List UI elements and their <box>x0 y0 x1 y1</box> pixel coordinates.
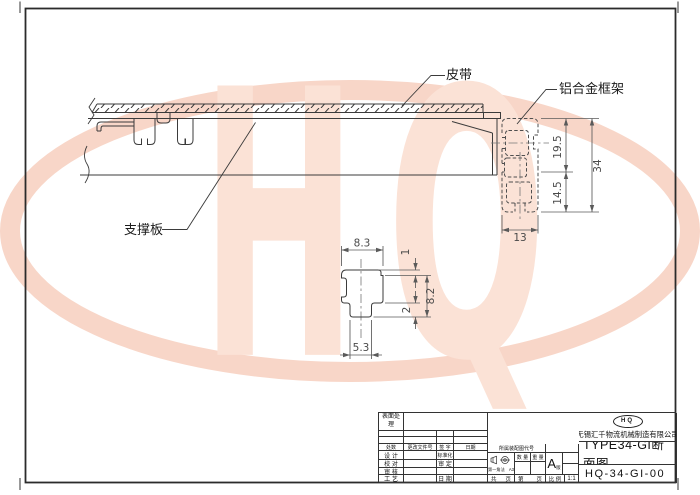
drawing-number: HQ-34-GI-00 <box>579 465 677 483</box>
blank-cell <box>454 460 488 468</box>
dim-guide-top-width: 8.3 <box>354 238 371 250</box>
blank-cell <box>404 451 437 460</box>
blank-cell <box>563 453 579 464</box>
plate-hook <box>186 119 194 145</box>
dim-frame-width: 13 <box>513 232 526 244</box>
dim-frame-upper: 19.5 <box>552 135 564 158</box>
company-cell: HQ 无锡汇千物流机械制造有限公司 <box>579 413 677 442</box>
scale-label: 比 例 <box>546 475 565 483</box>
changes-count-label: 处数 <box>379 444 404 451</box>
change-doc-label: 更改文件号 <box>404 444 437 451</box>
reviewer-label: 审 核 <box>379 468 404 475</box>
revision-word: 版 <box>556 465 561 471</box>
drawing-title: TYPE34-GI断面图 <box>579 442 677 465</box>
belt-section <box>92 104 501 123</box>
sheet-number-cell: 第 页 <box>515 475 546 483</box>
standardization-label: 标准化 <box>437 451 454 460</box>
label-belt: 皮带 <box>446 68 472 83</box>
blank-cell <box>379 437 404 444</box>
checker-label: 校 对 <box>379 460 404 468</box>
first-angle-projection-icon <box>489 454 513 466</box>
plate-hook <box>134 119 142 145</box>
date2-label: 日 期 <box>437 475 454 483</box>
designer-label: 设 计 <box>379 451 404 460</box>
signature-label: 签 字 <box>437 444 454 451</box>
blank-cell <box>515 462 531 475</box>
blank-cell <box>454 437 488 444</box>
blank-cell <box>563 464 579 475</box>
projection-cell: 第一角法 A3 <box>488 453 515 475</box>
date-label: 日期 <box>454 444 488 451</box>
plate-hook <box>178 119 186 145</box>
blank-cell <box>404 437 437 444</box>
scale-value: 1:1 <box>565 475 579 483</box>
projection-method-label: 第一角法 <box>488 467 505 473</box>
label-frame: 铝合金框架 <box>559 81 624 97</box>
blank-cell <box>454 475 488 483</box>
page-word: 页 <box>505 475 511 483</box>
total-word: 共 <box>491 475 497 483</box>
title-block: 表面处理 处数 更改文件号 签 字 日期 设 计 标准化 校 对 审 定 审 核… <box>378 412 676 482</box>
plate-hook <box>148 119 156 145</box>
guide-profile-detail <box>342 270 384 317</box>
blank-cell <box>454 468 488 475</box>
sheet-size-label: A3 <box>509 467 514 473</box>
callout-leaders <box>162 76 557 230</box>
blank-label <box>437 468 454 475</box>
drawing-sheet: { "watermark": { "text": "HQ" }, "callou… <box>0 0 700 495</box>
quantity-label: 数 量 <box>515 453 531 462</box>
dim-guide-bottom-width: 5.3 <box>353 342 370 354</box>
page-word2: 页 <box>536 475 542 483</box>
label-plate: 支撑板 <box>124 223 163 238</box>
blank-cell <box>404 468 437 475</box>
frame-dimensions <box>502 119 599 234</box>
dim-guide-lip: 1 <box>400 249 412 256</box>
blank-cell <box>404 475 437 483</box>
revision-letter: A <box>547 456 556 471</box>
blank-cell <box>454 451 488 460</box>
blank-cell <box>437 437 454 444</box>
belt-guide-groove <box>157 113 170 124</box>
blank-cell <box>531 462 546 475</box>
dim-frame-total: 34 <box>592 159 604 173</box>
revision-cell: A 版 <box>546 453 563 475</box>
dim-frame-lower: 14.5 <box>552 181 564 204</box>
blank-cell <box>404 460 437 468</box>
company-name: 无锡汇千物流机械制造有限公司 <box>579 430 677 440</box>
ordinal-word: 第 <box>518 475 524 483</box>
surface-treatment-label: 表面处理 <box>379 413 404 431</box>
process-label: 工 艺 <box>379 475 404 483</box>
blank-cell <box>404 413 488 431</box>
total-sheets-cell: 共 页 <box>488 475 515 483</box>
dim-guide-flange: 2 <box>401 307 413 314</box>
assembly-code-label: 所属装配图代号 <box>488 444 546 453</box>
blank-cell <box>546 444 579 453</box>
weight-label: 重 量 <box>531 453 546 462</box>
company-logo: HQ <box>613 415 643 428</box>
dim-guide-height: 8.2 <box>425 288 437 305</box>
approver-label: 审 定 <box>437 460 454 468</box>
